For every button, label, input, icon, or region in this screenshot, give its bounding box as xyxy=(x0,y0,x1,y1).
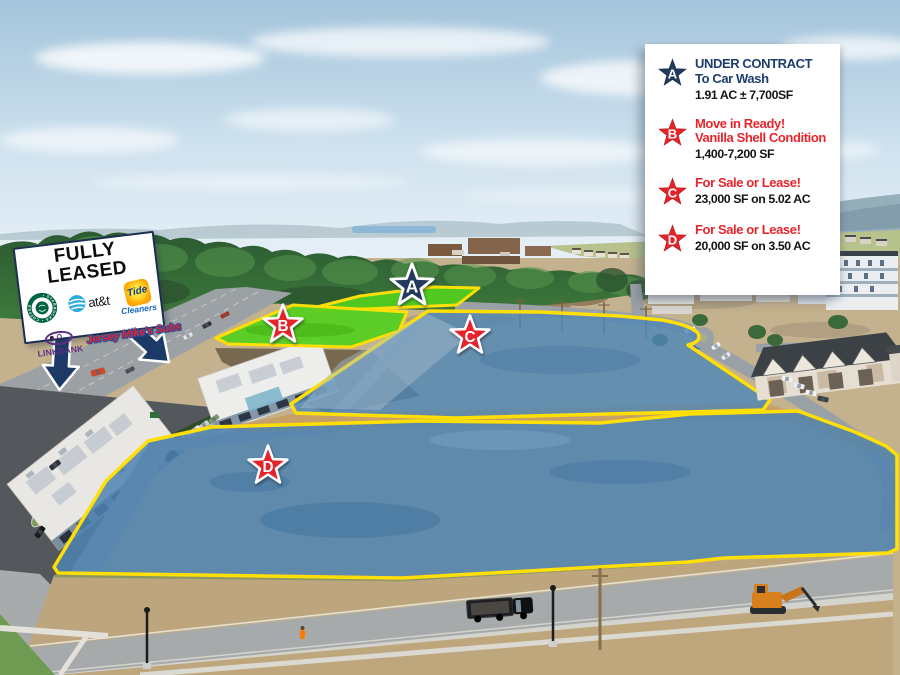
legend-item-d-text: For Sale or Lease! 20,000 SF on 3.50 AC xyxy=(695,223,810,253)
marker-c-label: C xyxy=(464,329,475,346)
jersey-mikes-wordmark: Jersey Mike's Subs xyxy=(86,324,162,347)
aerial-property-flyer: A B C D FULLY LEASED • STARBUCKS xyxy=(0,0,900,675)
legend-item-b: B Move in Ready! Vanilla Shell Condition… xyxy=(657,117,834,162)
worker xyxy=(300,626,305,639)
legend-item-c: C For Sale or Lease! 23,000 SF on 5.02 A… xyxy=(657,176,834,208)
legend-b-line1: Move in Ready! xyxy=(695,117,826,132)
legend-card: A UNDER CONTRACT To Car Wash 1.91 AC ± 7… xyxy=(645,44,840,295)
legend-item-d: D For Sale or Lease! 20,000 SF on 3.50 A… xyxy=(657,223,834,255)
legend-star-b-letter: B xyxy=(668,126,677,141)
att-logo: at&t xyxy=(67,291,110,314)
marker-b-label: B xyxy=(277,318,288,335)
legend-star-b-icon: B xyxy=(657,118,688,149)
legend-a-line1: UNDER CONTRACT xyxy=(695,57,812,72)
legend-a-line2: To Car Wash xyxy=(695,72,812,87)
starbucks-logo: • STARBUCKS • COFFEE xyxy=(24,290,60,326)
legend-star-c-letter: C xyxy=(668,186,678,201)
legend-star-a-icon: A xyxy=(657,58,688,89)
legend-star-d-icon: D xyxy=(657,224,688,255)
legend-a-detail: 1.91 AC ± 7,700SF xyxy=(695,88,812,102)
legend-d-detail: 20,000 SF on 3.50 AC xyxy=(695,239,810,253)
legend-item-a-text: UNDER CONTRACT To Car Wash 1.91 AC ± 7,7… xyxy=(695,57,812,102)
legend-item-b-text: Move in Ready! Vanilla Shell Condition 1… xyxy=(695,117,826,162)
distant-lake xyxy=(352,226,436,233)
legend-item-c-text: For Sale or Lease! 23,000 SF on 5.02 AC xyxy=(695,176,810,206)
legend-d-line1: For Sale or Lease! xyxy=(695,223,810,238)
legend-c-line1: For Sale or Lease! xyxy=(695,176,810,191)
tide-logo: Tide Cleaners xyxy=(118,278,158,316)
legend-star-c-icon: C xyxy=(657,177,688,208)
legend-b-line2: Vanilla Shell Condition xyxy=(695,131,826,146)
legend-item-a: A UNDER CONTRACT To Car Wash 1.91 AC ± 7… xyxy=(657,57,834,102)
marker-a-label: A xyxy=(406,277,419,297)
att-globe-icon xyxy=(67,294,87,314)
legend-b-detail: 1,400-7,200 SF xyxy=(695,147,826,161)
linkbank-logo: LINKBANK xyxy=(31,328,88,359)
legend-star-a-letter: A xyxy=(668,66,678,81)
legend-star-d-letter: D xyxy=(668,233,677,248)
dump-truck xyxy=(466,596,533,623)
fully-leased-sign: FULLY LEASED • STARBUCKS • COFFEE at&t xyxy=(13,231,166,345)
legend-c-detail: 23,000 SF on 5.02 AC xyxy=(695,192,810,206)
tide-wordmark: Tide xyxy=(124,284,151,299)
marker-d-label: D xyxy=(262,459,273,476)
tide-bullseye: Tide xyxy=(122,277,152,307)
att-wordmark: at&t xyxy=(87,293,110,310)
